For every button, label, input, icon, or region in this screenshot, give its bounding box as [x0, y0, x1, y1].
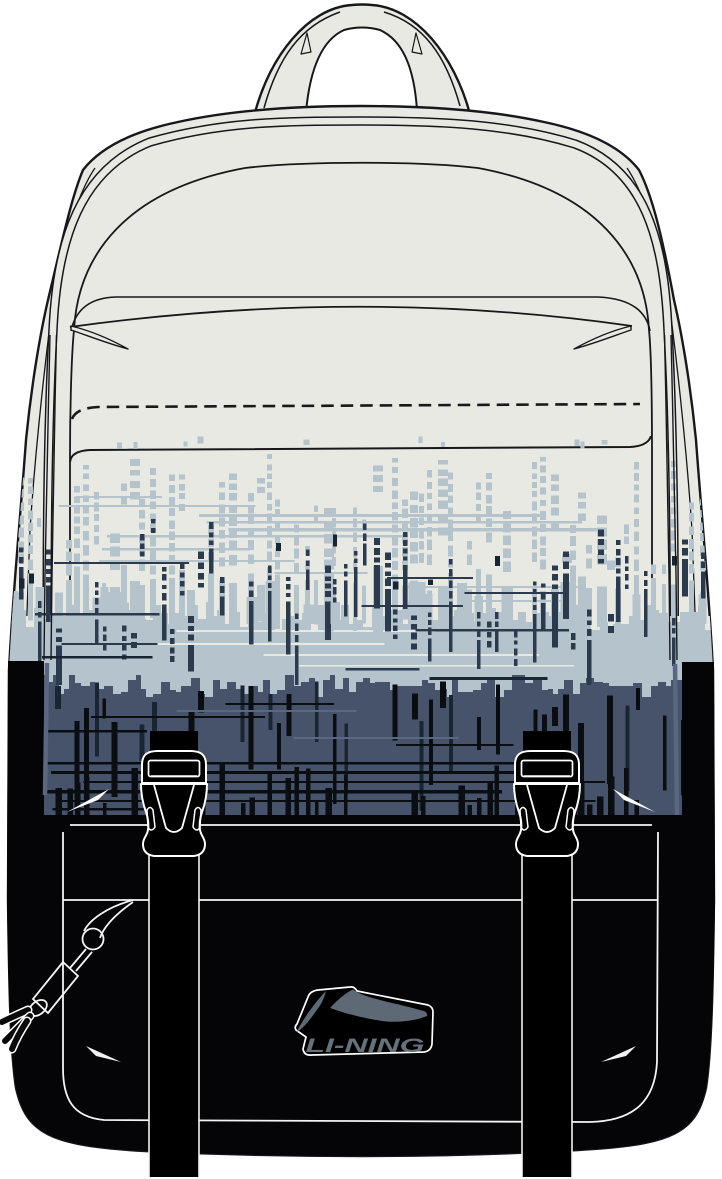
svg-text:LI-NING: LI-NING	[306, 1035, 425, 1057]
